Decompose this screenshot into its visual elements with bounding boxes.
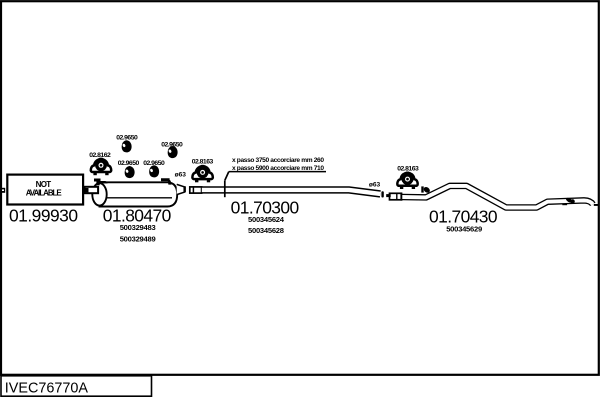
svg-text:x passo 5900 accorciare mm 710: x passo 5900 accorciare mm 710 — [232, 165, 324, 172]
svg-text:ø63: ø63 — [369, 182, 381, 189]
svg-text:02.8163: 02.8163 — [192, 159, 214, 166]
svg-text:IVEC76770A: IVEC76770A — [5, 380, 89, 396]
svg-text:01.70430: 01.70430 — [429, 206, 498, 226]
svg-text:x passo 3750 accorciare mm 260: x passo 3750 accorciare mm 260 — [232, 157, 324, 164]
svg-text:02.8163: 02.8163 — [397, 165, 419, 172]
svg-text:02.9650: 02.9650 — [116, 134, 138, 141]
svg-text:500345624: 500345624 — [248, 215, 285, 224]
svg-text:01.99930: 01.99930 — [9, 206, 78, 226]
svg-text:500329489: 500329489 — [120, 235, 156, 244]
svg-text:500329483: 500329483 — [120, 223, 156, 232]
svg-text:AVAILABLE: AVAILABLE — [26, 188, 63, 197]
svg-text:500345629: 500345629 — [446, 224, 482, 233]
svg-text:ø63: ø63 — [175, 171, 187, 178]
svg-text:500345628: 500345628 — [248, 226, 284, 235]
svg-text:02.9650: 02.9650 — [118, 160, 140, 167]
